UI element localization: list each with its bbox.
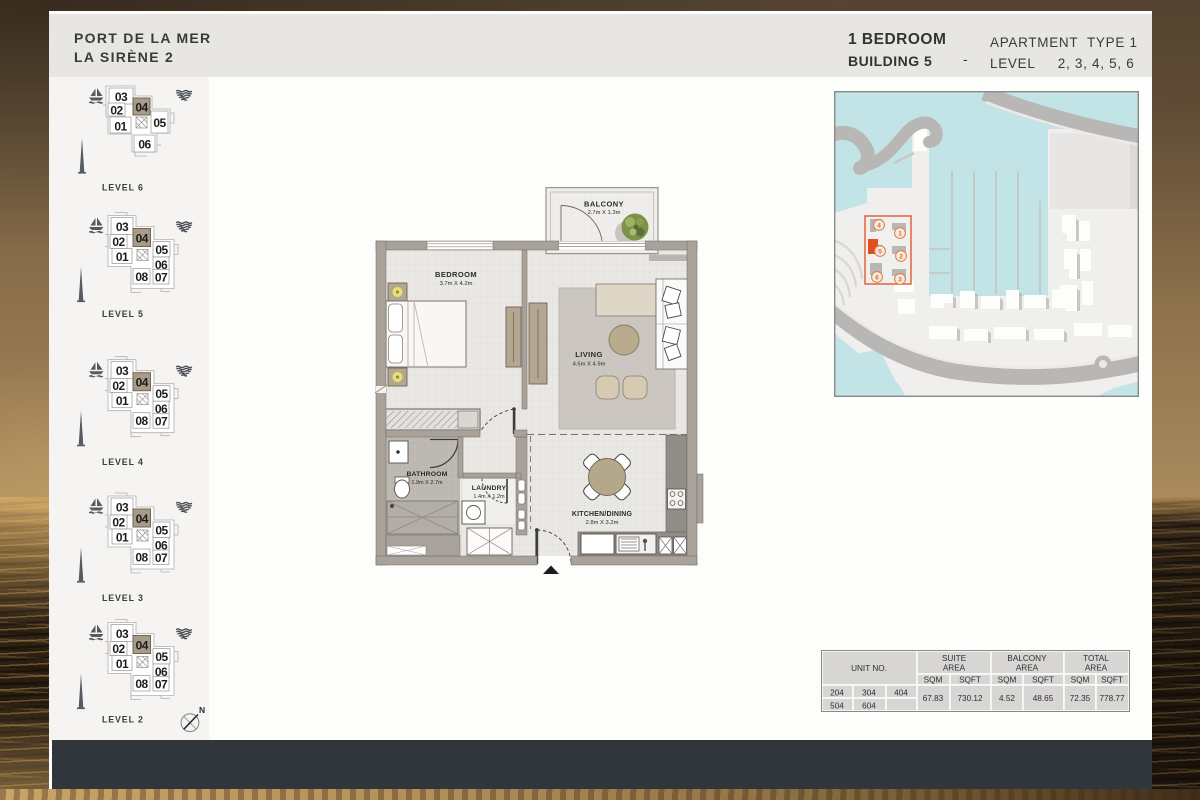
svg-text:BATHROOM: BATHROOM: [406, 471, 447, 478]
svg-text:BEDROOM: BEDROOM: [435, 270, 477, 279]
svg-text:LEVEL 5: LEVEL 5: [102, 309, 144, 319]
svg-text:LEVEL 2: LEVEL 2: [102, 715, 144, 725]
svg-text:3.7m X 4.2m: 3.7m X 4.2m: [440, 281, 473, 287]
svg-text:730.12: 730.12: [957, 694, 982, 703]
svg-text:2.8m X 3.2m: 2.8m X 3.2m: [586, 520, 619, 526]
svg-text:2.7m X 1.3m: 2.7m X 1.3m: [588, 210, 621, 216]
svg-text:UNIT NO.: UNIT NO.: [851, 664, 887, 673]
svg-text:304: 304: [862, 689, 876, 698]
svg-text:N: N: [199, 705, 205, 715]
svg-text:AREA: AREA: [1016, 664, 1039, 673]
svg-text:1: 1: [898, 230, 902, 237]
svg-text:604: 604: [862, 702, 876, 711]
svg-text:1.9m X 2.7m: 1.9m X 2.7m: [411, 480, 443, 486]
svg-text:5: 5: [878, 248, 882, 255]
svg-text:BALCONY: BALCONY: [584, 200, 624, 209]
svg-text:SQFT: SQFT: [959, 676, 981, 685]
svg-text:KITCHEN/DINING: KITCHEN/DINING: [572, 511, 633, 518]
svg-text:778.77: 778.77: [1099, 694, 1124, 703]
svg-text:504: 504: [830, 702, 844, 711]
svg-text:404: 404: [894, 689, 908, 698]
svg-text:1.4m X 1.2m: 1.4m X 1.2m: [473, 494, 505, 500]
svg-text:AREA: AREA: [943, 664, 966, 673]
svg-text:SQM: SQM: [924, 676, 943, 685]
svg-text:SQM: SQM: [1071, 676, 1090, 685]
svg-text:6: 6: [875, 274, 879, 281]
svg-text:LEVEL 3: LEVEL 3: [102, 593, 144, 603]
svg-text:SQM: SQM: [998, 676, 1017, 685]
svg-text:SQFT: SQFT: [1032, 676, 1054, 685]
svg-text:3: 3: [898, 276, 902, 283]
svg-text:AREA: AREA: [1085, 664, 1108, 673]
svg-text:48.65: 48.65: [1033, 694, 1054, 703]
svg-text:72.35: 72.35: [1070, 694, 1091, 703]
svg-text:204: 204: [830, 689, 844, 698]
svg-text:2: 2: [899, 253, 903, 260]
svg-text:LEVEL 4: LEVEL 4: [102, 457, 144, 467]
svg-text:67.83: 67.83: [923, 694, 944, 703]
svg-text:BALCONY: BALCONY: [1007, 654, 1047, 663]
svg-text:LAUNDRY: LAUNDRY: [472, 485, 507, 492]
svg-text:LEVEL 6: LEVEL 6: [102, 183, 144, 193]
svg-text:SUITE: SUITE: [942, 654, 967, 663]
svg-text:TOTAL: TOTAL: [1083, 654, 1109, 663]
svg-text:4.5m X 4.9m: 4.5m X 4.9m: [573, 362, 606, 368]
svg-text:SQFT: SQFT: [1101, 676, 1123, 685]
svg-text:4.52: 4.52: [999, 694, 1015, 703]
svg-text:LIVING: LIVING: [575, 350, 602, 359]
svg-text:4: 4: [877, 222, 881, 229]
